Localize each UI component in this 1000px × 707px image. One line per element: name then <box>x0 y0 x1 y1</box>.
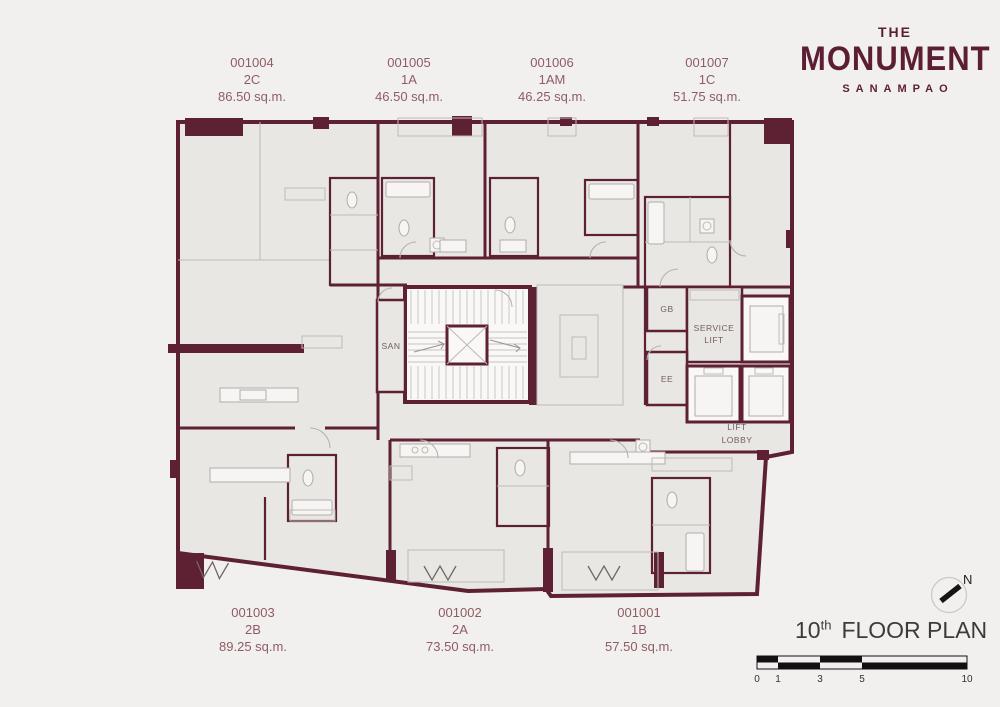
scale-tick-1: 1 <box>775 674 781 685</box>
north-arrow-icon: N <box>932 572 973 613</box>
unit-area: 51.75 sq.m. <box>637 88 777 105</box>
scale-tick-0: 0 <box>754 674 760 685</box>
unit-id: 001003 <box>183 604 323 621</box>
unit-id: 001005 <box>339 54 479 71</box>
gb-label: GB <box>660 304 673 314</box>
san-room: SAN <box>377 300 405 392</box>
scale-bar: 0 1 3 5 10 <box>754 656 973 685</box>
unit-type: 2A <box>390 621 530 638</box>
scale-tick-2: 3 <box>817 674 823 685</box>
san-label: SAN <box>382 341 401 351</box>
lift-lobby-label-line2: LOBBY <box>722 435 753 445</box>
unit-type: 1AM <box>482 71 622 88</box>
scale-tick-3: 5 <box>859 674 865 685</box>
stair-core <box>405 287 530 402</box>
unit-area: 46.25 sq.m. <box>482 88 622 105</box>
unit-area: 73.50 sq.m. <box>390 638 530 655</box>
scale-tick-4: 10 <box>961 674 973 685</box>
logo-the: THE <box>800 24 990 40</box>
service-lift-label-line2: LIFT <box>704 335 723 345</box>
floor-plan-drawing: SAN GB SERVICE LIFT EE <box>0 0 1000 707</box>
unit-id: 001002 <box>390 604 530 621</box>
title-floor-number: 10 <box>795 617 821 643</box>
unit-type: 1B <box>569 621 709 638</box>
floor-plan-page: SAN GB SERVICE LIFT EE <box>0 0 1000 707</box>
unit-label-001003: 001003 2B 89.25 sq.m. <box>183 604 323 655</box>
unit-type: 1A <box>339 71 479 88</box>
unit-label-001007: 001007 1C 51.75 sq.m. <box>637 54 777 105</box>
unit-label-001001: 001001 1B 57.50 sq.m. <box>569 604 709 655</box>
unit-label-001006: 001006 1AM 46.25 sq.m. <box>482 54 622 105</box>
unit-area: 46.50 sq.m. <box>339 88 479 105</box>
unit-type: 1C <box>637 71 777 88</box>
unit-id: 001004 <box>182 54 322 71</box>
ee-label: EE <box>661 374 673 384</box>
unit-area: 89.25 sq.m. <box>183 638 323 655</box>
unit-type: 2B <box>183 621 323 638</box>
north-label: N <box>963 572 972 587</box>
title-label: FLOOR PLAN <box>841 617 987 643</box>
service-lift-car <box>742 296 790 362</box>
unit-id: 001001 <box>569 604 709 621</box>
passenger-lift-car-2 <box>742 366 790 422</box>
title-ordinal: th <box>821 617 832 632</box>
brand-logo: THE MONUMENT SANAMPAO <box>800 24 990 95</box>
unit-area: 57.50 sq.m. <box>569 638 709 655</box>
logo-name: MONUMENT <box>800 39 990 79</box>
service-lift-label-line1: SERVICE <box>694 323 735 333</box>
unit-label-001002: 001002 2A 73.50 sq.m. <box>390 604 530 655</box>
unit-id: 001007 <box>637 54 777 71</box>
unit-area: 86.50 sq.m. <box>182 88 322 105</box>
lift-lobby-label-line1: LIFT <box>727 422 746 432</box>
unit-type: 2C <box>182 71 322 88</box>
unit-label-001005: 001005 1A 46.50 sq.m. <box>339 54 479 105</box>
logo-sub: SANAMPAO <box>800 83 990 95</box>
unit-id: 001006 <box>482 54 622 71</box>
floor-plan-title: 10thFLOOR PLAN <box>795 617 985 644</box>
passenger-lift-car-1 <box>687 366 740 422</box>
unit-label-001004: 001004 2C 86.50 sq.m. <box>182 54 322 105</box>
